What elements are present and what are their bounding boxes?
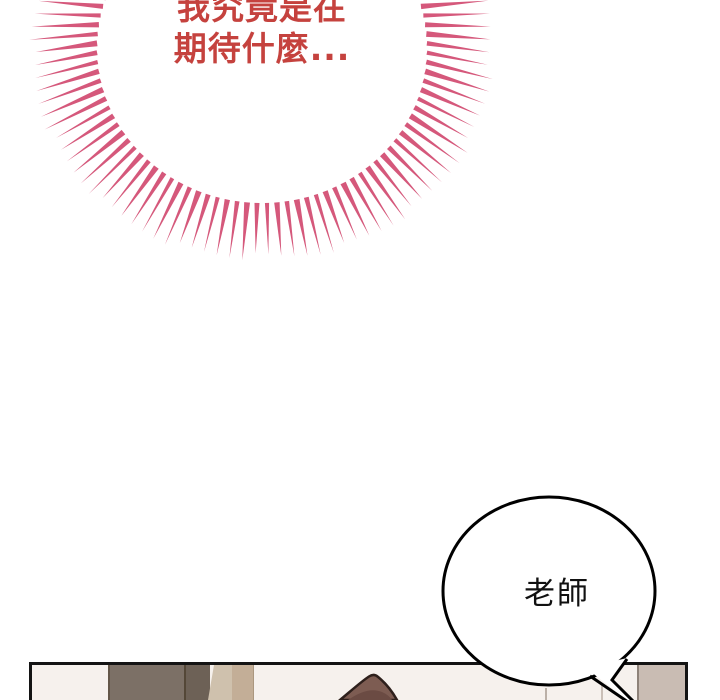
inner-thought-line-2: 期待什麼...: [12, 28, 512, 69]
wall-trim-dark: [232, 665, 254, 700]
burst-spike: [36, 69, 99, 91]
burst-spike: [242, 202, 250, 260]
door-block: [637, 665, 687, 700]
wall-corner-line: [601, 684, 603, 700]
burst-spike: [332, 186, 357, 239]
burst-spike: [255, 203, 260, 253]
comic-panel: [29, 662, 688, 700]
character-head: [332, 665, 412, 700]
burst-spike: [180, 190, 202, 243]
inner-thought-line-1: 我究竟是在: [12, 0, 512, 28]
burst-spike: [285, 201, 295, 256]
burst-spike: [217, 199, 230, 255]
burst-spike: [423, 78, 486, 103]
cabinet-block: [108, 665, 186, 700]
burst-spike: [294, 199, 308, 256]
speech-bubble-text: 老師: [497, 577, 617, 611]
inner-thought-text: 我究竟是在 期待什麼...: [12, 0, 512, 69]
burst-spike: [38, 78, 101, 104]
burst-spike: [165, 186, 192, 245]
burst-spike: [424, 69, 489, 92]
burst-spike: [323, 190, 345, 243]
burst-spike: [229, 201, 239, 258]
comic-page: { "burst": { "line1": "我究竟是在", "line2": …: [0, 0, 720, 700]
burst-spike: [265, 203, 269, 255]
wall-corner-line: [545, 688, 547, 700]
wall-trim-light: [208, 665, 232, 700]
cabinet-side-face: [184, 665, 210, 700]
burst-spike: [274, 202, 281, 256]
